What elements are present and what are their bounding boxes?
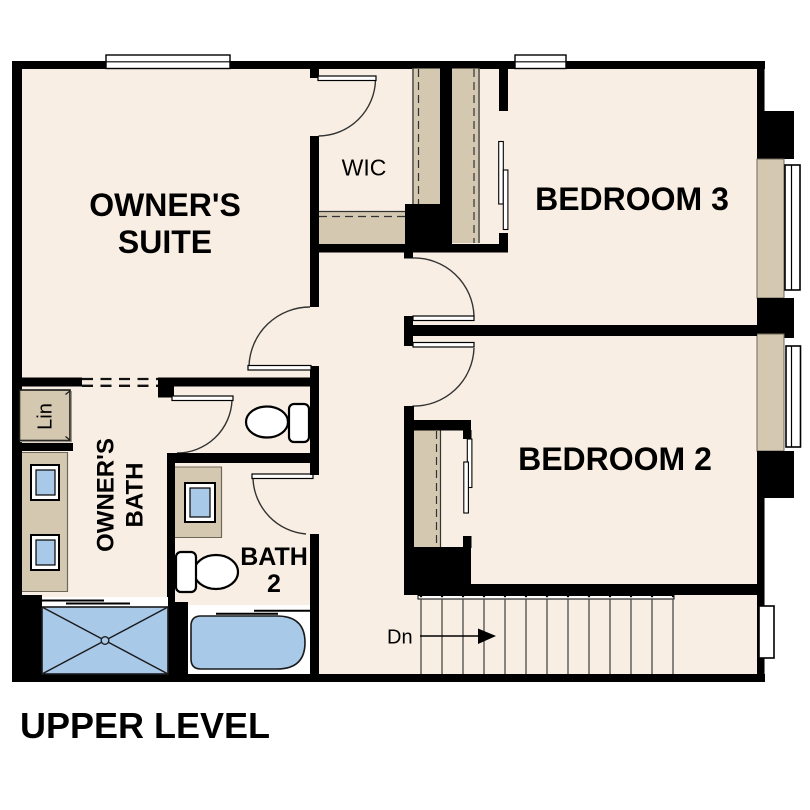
svg-text:OWNER'S: OWNER'S	[89, 187, 241, 223]
svg-text:BATH: BATH	[240, 543, 308, 571]
svg-text:OWNER'S: OWNER'S	[93, 438, 120, 552]
svg-text:BATH: BATH	[122, 463, 149, 528]
svg-text:Lin: Lin	[35, 403, 57, 430]
svg-text:UPPER LEVEL: UPPER LEVEL	[20, 705, 270, 746]
svg-text:BEDROOM 2: BEDROOM 2	[518, 441, 712, 477]
svg-text:SUITE: SUITE	[118, 224, 212, 260]
svg-text:WIC: WIC	[342, 155, 387, 181]
svg-text:Dn: Dn	[387, 627, 413, 649]
svg-text:2: 2	[267, 570, 281, 598]
svg-text:BEDROOM 3: BEDROOM 3	[535, 181, 729, 217]
